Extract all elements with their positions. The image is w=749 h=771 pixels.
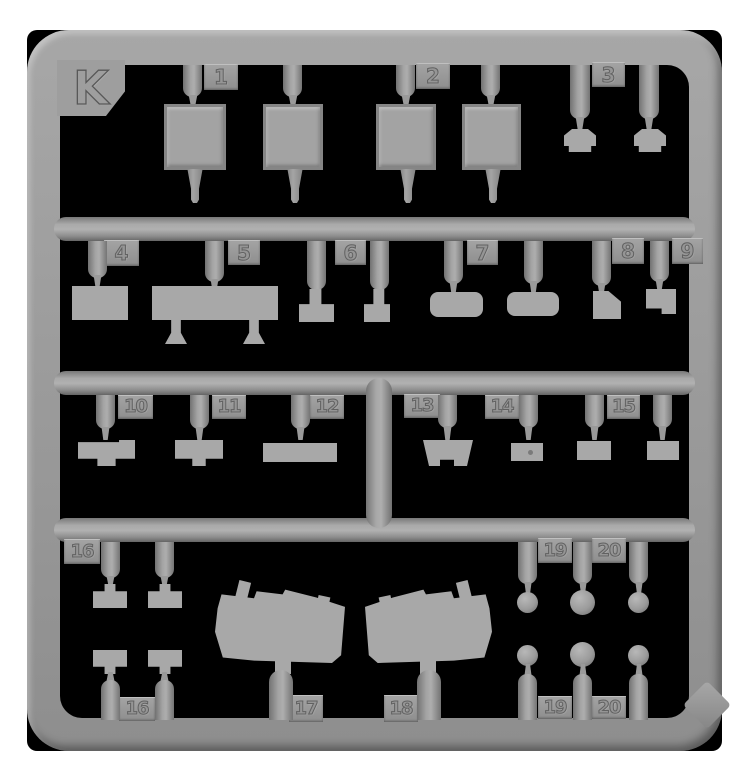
part-tag-20-top: 20 bbox=[592, 538, 626, 563]
part-tag-12: 12 bbox=[310, 395, 344, 419]
sprue-gate bbox=[650, 241, 669, 282]
part-tag-14: 14 bbox=[485, 395, 519, 419]
part-tag-20-bottom: 20 bbox=[592, 696, 626, 719]
part-5-plate bbox=[152, 286, 278, 320]
part-2-square-plate bbox=[376, 104, 436, 170]
part-tag-10: 10 bbox=[118, 395, 153, 419]
part-15-plate bbox=[577, 441, 611, 460]
part-tag-16-bottom: 16 bbox=[119, 697, 155, 721]
part-tag-1: 1 bbox=[204, 64, 238, 90]
sprue-gate bbox=[205, 241, 224, 282]
part-19-ball bbox=[517, 592, 538, 613]
sprue-gate bbox=[155, 680, 174, 720]
part-tag-15: 15 bbox=[607, 395, 640, 419]
sprue-gate bbox=[101, 542, 120, 578]
sprue-gate bbox=[269, 670, 293, 720]
part-tag-19-bottom: 19 bbox=[538, 696, 572, 719]
sprue-gate bbox=[396, 65, 415, 97]
part-12-bar bbox=[263, 443, 337, 462]
sprue-gate bbox=[585, 395, 604, 428]
sprue-gate bbox=[653, 395, 672, 428]
part-tag-3: 3 bbox=[592, 62, 625, 87]
runner-2 bbox=[54, 217, 695, 241]
part-20-ball bbox=[628, 592, 649, 613]
part-14-plate bbox=[511, 443, 543, 461]
part-20-ball bbox=[570, 642, 595, 667]
sprue-gate bbox=[88, 241, 107, 278]
sprue-gate bbox=[283, 65, 302, 97]
sprue-gate bbox=[438, 395, 457, 428]
sprue-gate bbox=[570, 65, 590, 119]
sprue-gate bbox=[370, 241, 389, 290]
part-1-square-plate bbox=[263, 104, 323, 170]
part-tag-6: 6 bbox=[335, 240, 366, 265]
sprue-gate bbox=[592, 241, 611, 286]
part-7-pad bbox=[507, 292, 559, 316]
part-7-pad bbox=[430, 292, 483, 317]
sprue-gate bbox=[444, 241, 463, 284]
part-tag-13: 13 bbox=[404, 394, 440, 418]
part-tag-7: 7 bbox=[467, 240, 498, 265]
sprue-gate bbox=[190, 395, 209, 429]
part-1-square-plate bbox=[164, 104, 226, 170]
sprue-gate bbox=[573, 674, 592, 720]
part-tag-17: 17 bbox=[289, 695, 323, 722]
sprue-letter: K bbox=[73, 65, 109, 111]
part-tag-8: 8 bbox=[612, 238, 644, 264]
part-tag-18: 18 bbox=[384, 695, 418, 722]
sprue-gate bbox=[291, 395, 310, 429]
sprue-gate bbox=[417, 670, 441, 720]
part-20-ball bbox=[570, 590, 595, 615]
part-tag-19-top: 19 bbox=[538, 538, 572, 563]
sprue-gate bbox=[183, 65, 202, 97]
part-4-plate bbox=[72, 286, 128, 320]
part-tag-9: 9 bbox=[672, 238, 703, 264]
sprue-gate bbox=[629, 542, 648, 584]
part-tag-4: 4 bbox=[104, 240, 139, 266]
part-tag-2: 2 bbox=[416, 63, 450, 89]
part-20-ball bbox=[628, 645, 649, 666]
sprue-gate bbox=[307, 241, 326, 290]
sprue-gate bbox=[155, 542, 174, 578]
part-19-ball bbox=[517, 645, 538, 666]
runner-divider bbox=[366, 378, 392, 528]
sprue-gate bbox=[481, 65, 500, 97]
part-tag-5: 5 bbox=[228, 240, 260, 265]
part-2-square-plate bbox=[462, 104, 521, 170]
sprue-gate bbox=[96, 395, 115, 429]
part-tag-11: 11 bbox=[212, 395, 246, 419]
part-14-hole bbox=[528, 450, 533, 455]
sprue-gate bbox=[629, 674, 648, 720]
sprue-gate bbox=[524, 241, 543, 284]
part-tag-16-top: 16 bbox=[64, 539, 100, 564]
sprue-gate bbox=[518, 674, 537, 720]
sprue-gate bbox=[519, 395, 538, 428]
sprue-photo: K 1 2 3 4 5 6 7 8 9 10 11 12 13 14 15 16… bbox=[0, 0, 749, 771]
sprue-gate bbox=[518, 542, 537, 584]
sprue-gate bbox=[639, 65, 659, 119]
part-15-plate bbox=[647, 441, 679, 460]
sprue-gate bbox=[101, 680, 120, 720]
sprue-gate bbox=[573, 542, 592, 584]
